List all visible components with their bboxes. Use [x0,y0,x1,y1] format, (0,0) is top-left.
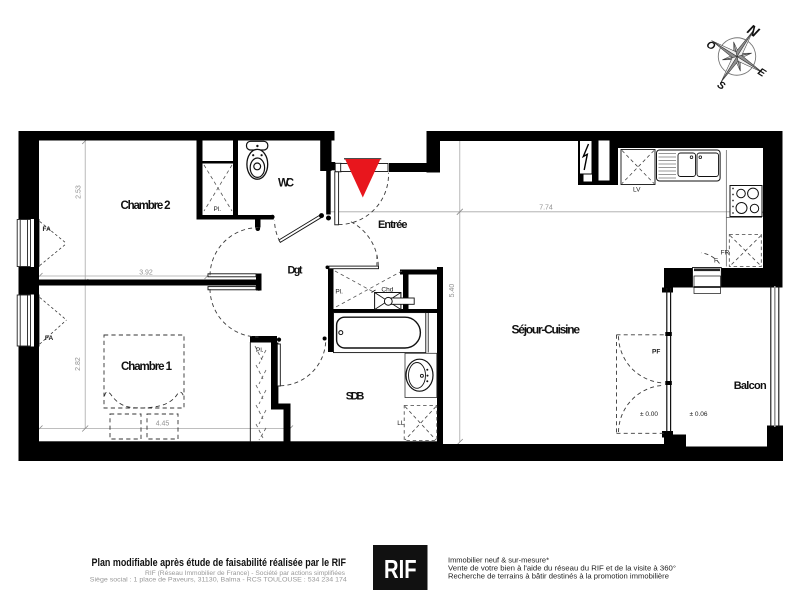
svg-text:RIF: RIF [384,554,417,584]
svg-text:Dgt: Dgt [288,264,303,276]
svg-text:Séjour-Cuisine: Séjour-Cuisine [512,323,581,337]
svg-text:FR: FR [721,250,730,257]
svg-text:5.40: 5.40 [449,284,456,298]
svg-text:± 0.06: ± 0.06 [690,411,708,418]
svg-text:Chambre 1: Chambre 1 [121,361,173,373]
svg-text:Pl.: Pl. [214,206,222,213]
svg-text:Siège social : 1 place de Pave: Siège social : 1 place de Paveurs, 31130… [90,577,347,584]
svg-text:Entrée: Entrée [378,219,408,231]
svg-text:Plan modifiable après étude de: Plan modifiable après étude de faisabili… [92,557,347,569]
svg-text:LV: LV [633,186,641,193]
svg-text:FA: FA [45,335,54,342]
svg-text:2.82: 2.82 [75,357,82,371]
svg-text:FA: FA [43,226,52,233]
svg-text:LL: LL [397,420,405,427]
svg-text:Chambre 2: Chambre 2 [121,200,171,212]
svg-text:2.53: 2.53 [76,185,83,199]
svg-text:Recherche de terrains à bâtir: Recherche de terrains à bâtir destinés à… [448,574,669,581]
svg-text:4.45: 4.45 [156,421,170,428]
svg-text:Vente de votre bien à l'aide d: Vente de votre bien à l'aide du réseau d… [448,565,676,573]
svg-text:Immobilier neuf & sur-mesure*: Immobilier neuf & sur-mesure* [448,558,549,565]
svg-text:Pl.: Pl. [256,347,264,354]
svg-text:F: F [714,258,718,265]
svg-text:Pl.: Pl. [335,288,343,295]
svg-text:Balcon: Balcon [734,380,767,392]
svg-text:PF: PF [652,348,660,355]
svg-text:WC: WC [278,178,294,190]
svg-text:3.92: 3.92 [139,270,153,277]
svg-text:Chd: Chd [381,287,393,294]
svg-text:± 0.00: ± 0.00 [640,411,658,418]
svg-text:7.74: 7.74 [539,205,553,212]
svg-text:SDB: SDB [346,390,365,402]
